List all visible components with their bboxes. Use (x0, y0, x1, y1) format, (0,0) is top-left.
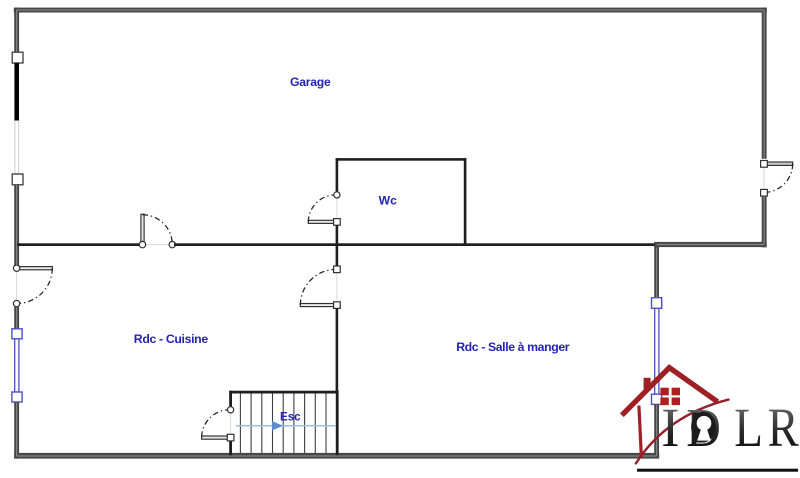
svg-text:Wc: Wc (379, 193, 398, 207)
svg-text:R: R (768, 397, 799, 458)
svg-text:L: L (734, 397, 763, 458)
svg-text:I: I (661, 397, 679, 458)
svg-text:Garage: Garage (290, 75, 331, 89)
svg-text:Rdc - Salle à manger: Rdc - Salle à manger (456, 340, 570, 354)
svg-text:Rdc - Cuisine: Rdc - Cuisine (134, 332, 209, 346)
svg-text:Esc: Esc (280, 410, 301, 423)
